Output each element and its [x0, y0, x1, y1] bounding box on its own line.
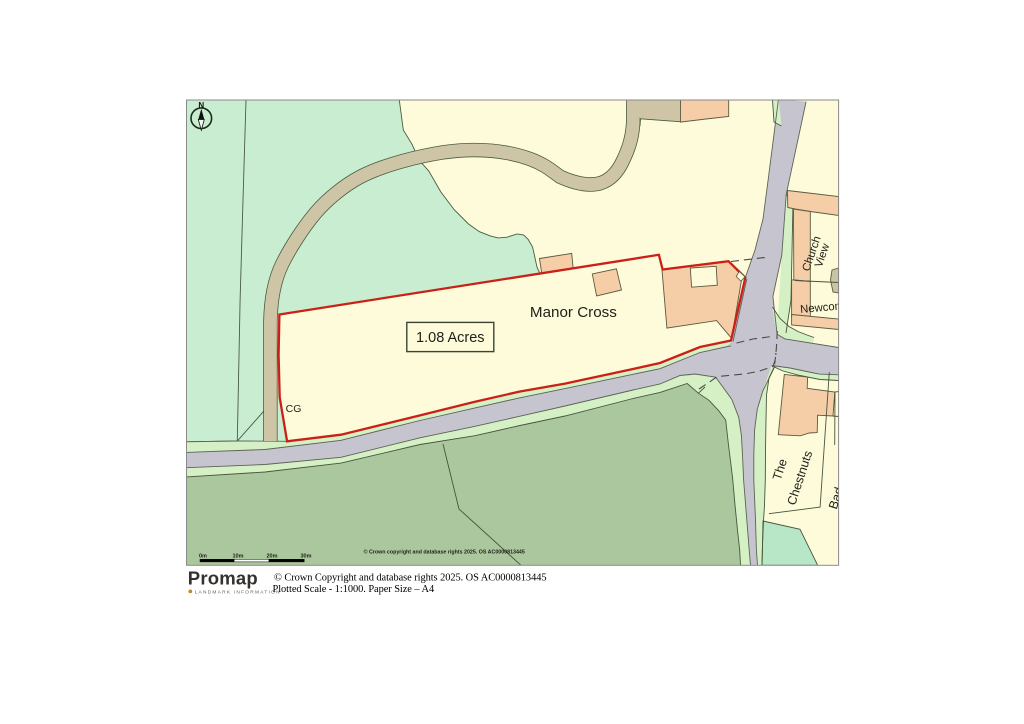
- svg-text:20m: 20m: [267, 554, 278, 560]
- svg-text:LANDMARK INFORMATION: LANDMARK INFORMATION: [195, 590, 281, 596]
- svg-text:1.08 Acres: 1.08 Acres: [416, 330, 485, 346]
- svg-text:N: N: [198, 101, 204, 110]
- svg-text:Plotted Scale - 1:1000. Paper: Plotted Scale - 1:1000. Paper Size – A4: [273, 584, 435, 595]
- svg-text:© Crown Copyright and database: © Crown Copyright and database rights 20…: [274, 573, 546, 584]
- svg-text:CG: CG: [286, 403, 302, 415]
- svg-text:© Crown copyright and database: © Crown copyright and database rights 20…: [364, 549, 525, 556]
- svg-text:0m: 0m: [199, 554, 207, 560]
- svg-text:Manor Cross: Manor Cross: [530, 304, 617, 321]
- svg-text:10m: 10m: [233, 554, 244, 560]
- svg-text:Promap: Promap: [188, 568, 258, 589]
- svg-text:30m: 30m: [301, 554, 312, 560]
